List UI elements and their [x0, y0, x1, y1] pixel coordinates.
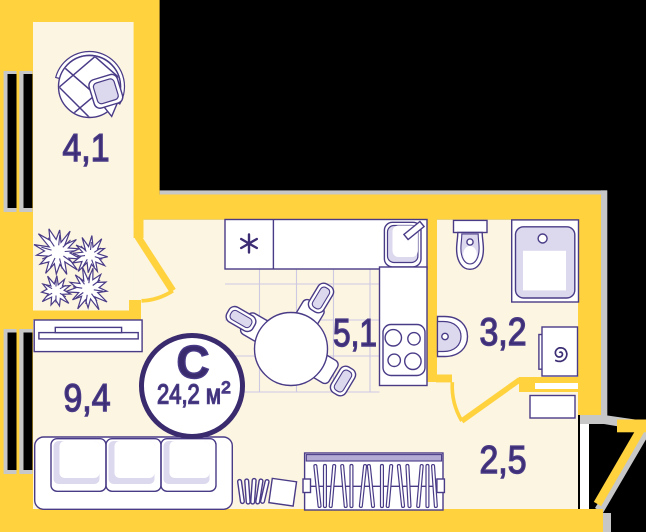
svg-text:24,2 м: 24,2 м	[157, 379, 221, 410]
svg-text:3,2: 3,2	[480, 311, 527, 354]
svg-text:4,1: 4,1	[63, 127, 110, 170]
svg-text:2,5: 2,5	[480, 439, 527, 482]
svg-text:2: 2	[221, 378, 230, 397]
svg-text:5,1: 5,1	[333, 312, 377, 355]
svg-text:9,4: 9,4	[64, 377, 111, 420]
